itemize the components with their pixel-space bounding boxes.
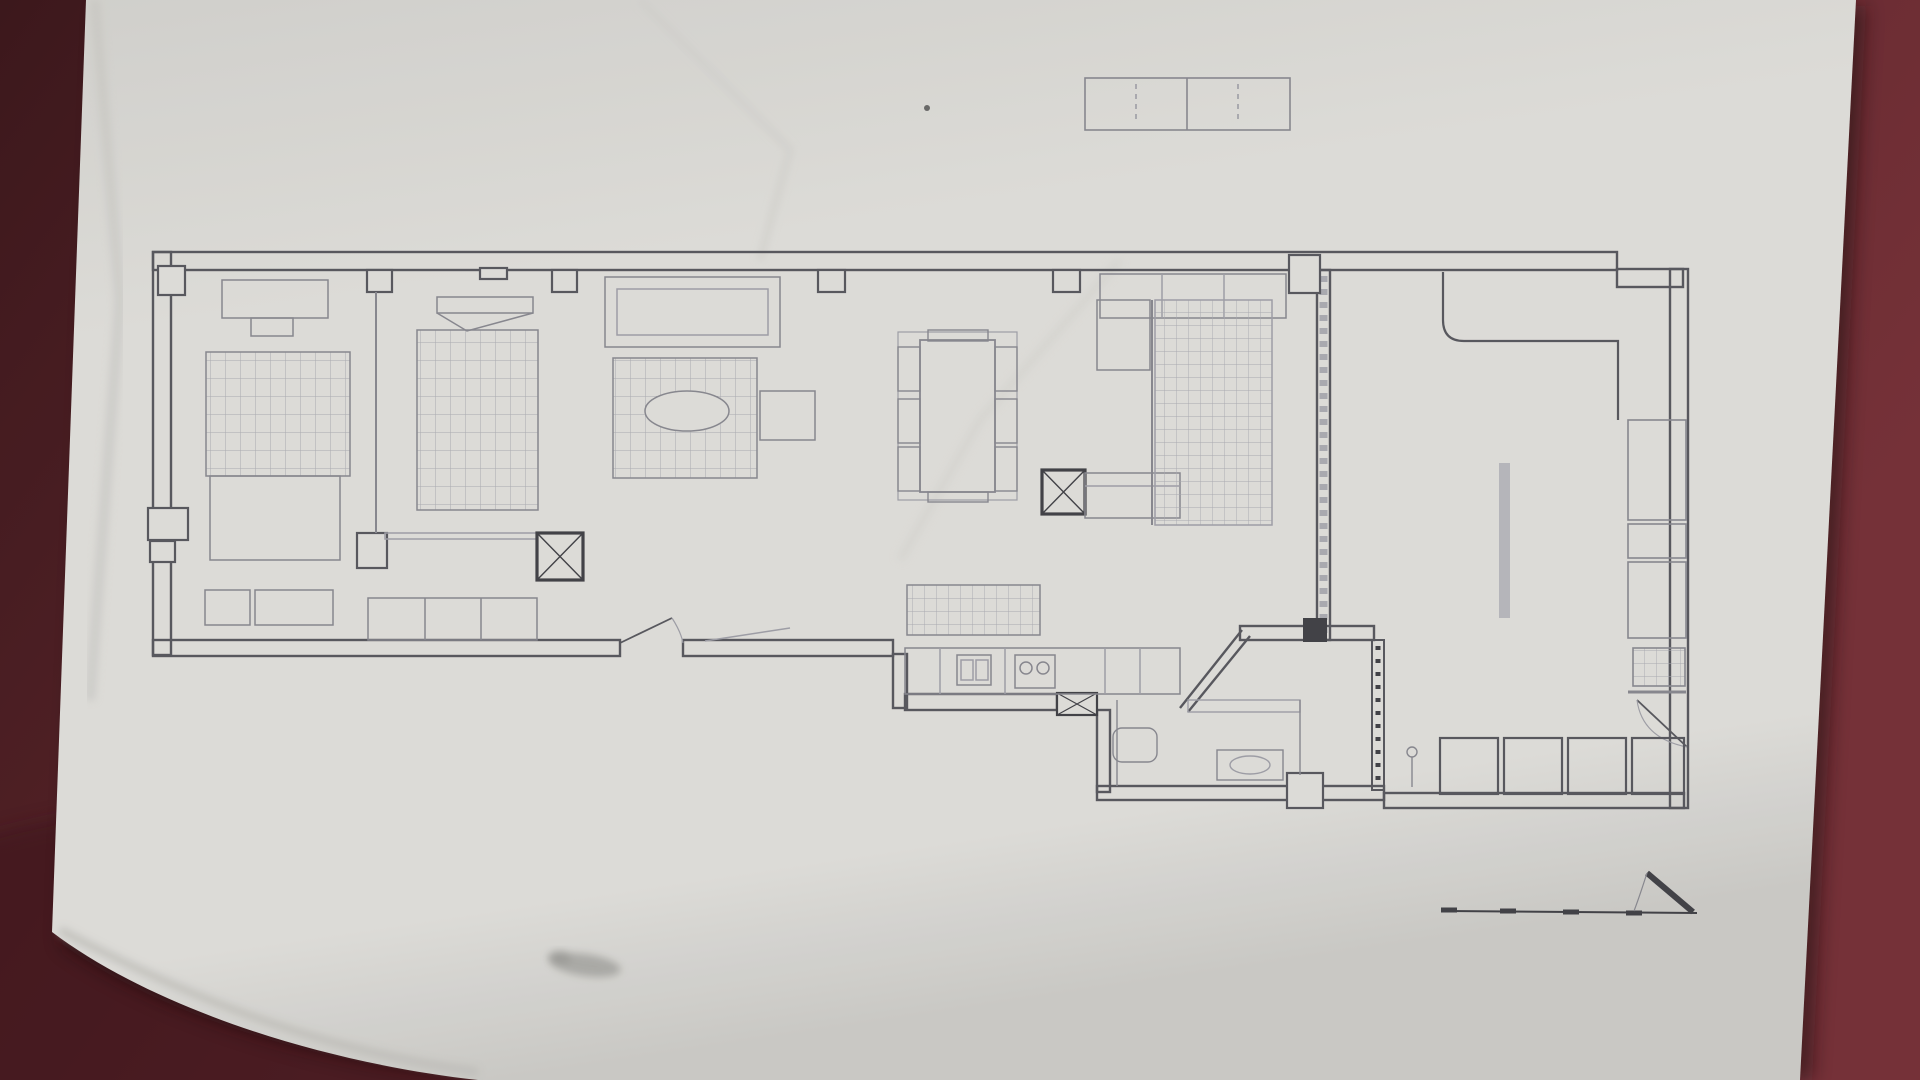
vignette <box>0 0 1920 1080</box>
floor-plan-scene <box>0 0 1920 1080</box>
photo-of-floor-plan <box>0 0 1920 1080</box>
